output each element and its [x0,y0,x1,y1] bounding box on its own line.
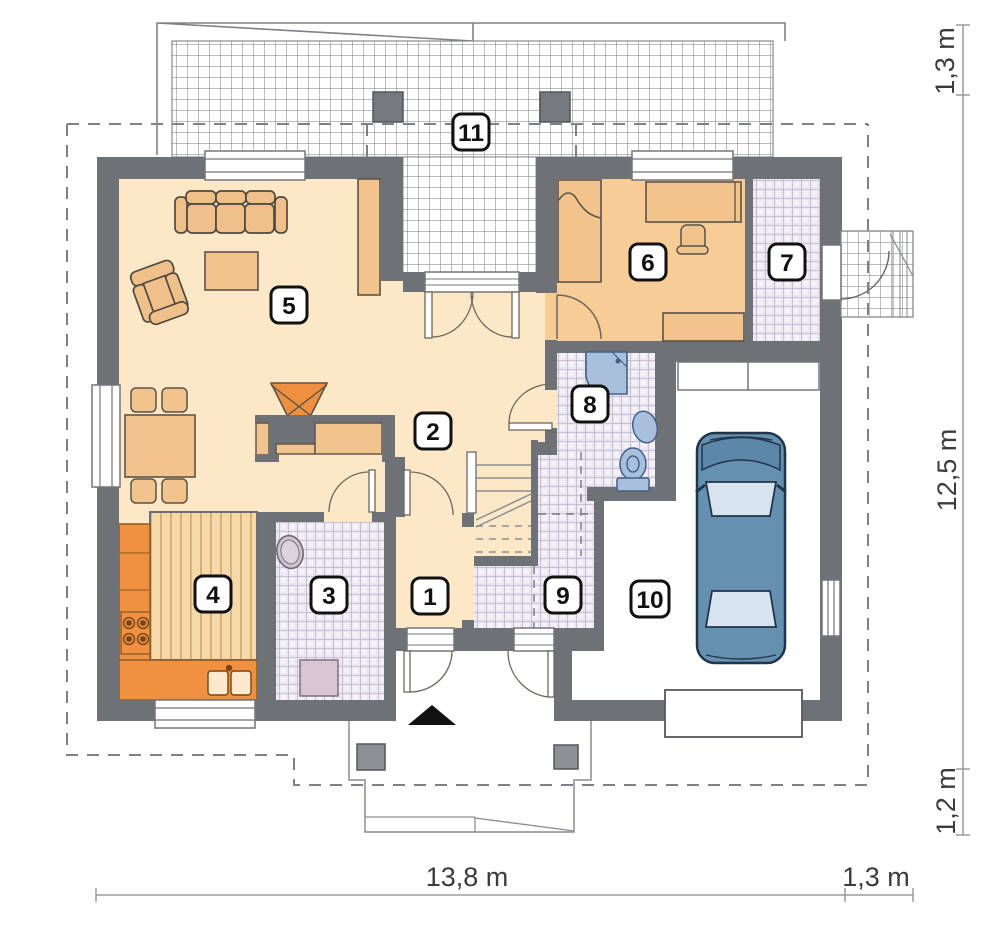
svg-text:12,5 m: 12,5 m [932,429,962,512]
svg-text:1,3 m: 1,3 m [842,862,910,892]
svg-text:11: 11 [458,120,484,147]
svg-text:7: 7 [780,250,794,277]
svg-text:13,8 m: 13,8 m [426,862,509,892]
svg-text:3: 3 [322,583,336,610]
svg-text:4: 4 [206,582,220,609]
svg-text:2: 2 [426,419,440,446]
svg-text:1,3 m: 1,3 m [930,27,960,95]
svg-text:1,2 m: 1,2 m [931,767,961,835]
svg-text:9: 9 [556,583,570,610]
svg-text:6: 6 [641,250,655,277]
svg-text:5: 5 [282,293,296,320]
svg-text:8: 8 [583,392,597,419]
svg-text:1: 1 [423,584,437,611]
svg-text:10: 10 [636,587,663,614]
